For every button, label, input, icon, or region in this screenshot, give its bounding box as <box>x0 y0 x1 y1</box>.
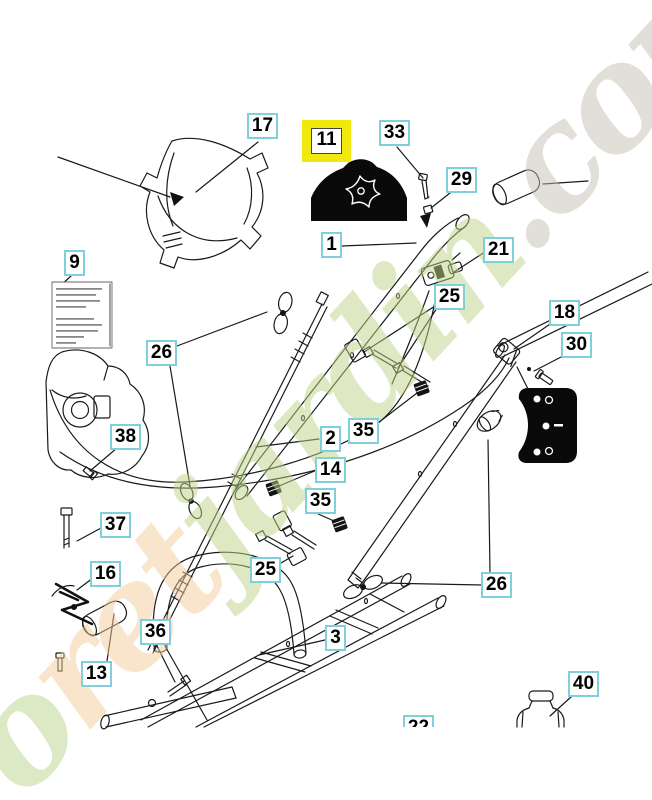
part-label-30: 30 <box>561 332 592 358</box>
part-label-21: 21 <box>483 237 514 263</box>
part-label-3: 3 <box>325 625 346 651</box>
part-label-38: 38 <box>110 424 141 450</box>
part-label-36: 36 <box>140 619 171 645</box>
part-label-22: 22 <box>403 715 434 727</box>
part-label-35: 35 <box>305 488 336 514</box>
part-label-2: 2 <box>320 426 341 452</box>
part-label-26: 26 <box>481 572 512 598</box>
part-label-1: 1 <box>321 232 342 258</box>
part-label-14: 14 <box>315 457 346 483</box>
part-label-9: 9 <box>64 250 85 276</box>
part-label-18: 18 <box>549 300 580 326</box>
part-label-11: 11 <box>311 128 342 154</box>
part-label-16: 16 <box>90 561 121 587</box>
labels-layer: 1711332912125183092638352143537251626363… <box>0 0 652 800</box>
part-label-17: 17 <box>247 113 278 139</box>
part-label-29: 29 <box>446 167 477 193</box>
part-label-13: 13 <box>81 661 112 687</box>
part-label-35: 35 <box>348 418 379 444</box>
part-label-33: 33 <box>379 120 410 146</box>
parts-diagram: foretjardin.com 171133291212518309263835… <box>0 0 652 800</box>
part-label-25: 25 <box>434 284 465 310</box>
highlight-box: 11 <box>302 120 351 162</box>
part-label-40: 40 <box>568 671 599 697</box>
part-label-25: 25 <box>250 557 281 583</box>
part-label-26: 26 <box>146 340 177 366</box>
part-label-37: 37 <box>100 512 131 538</box>
